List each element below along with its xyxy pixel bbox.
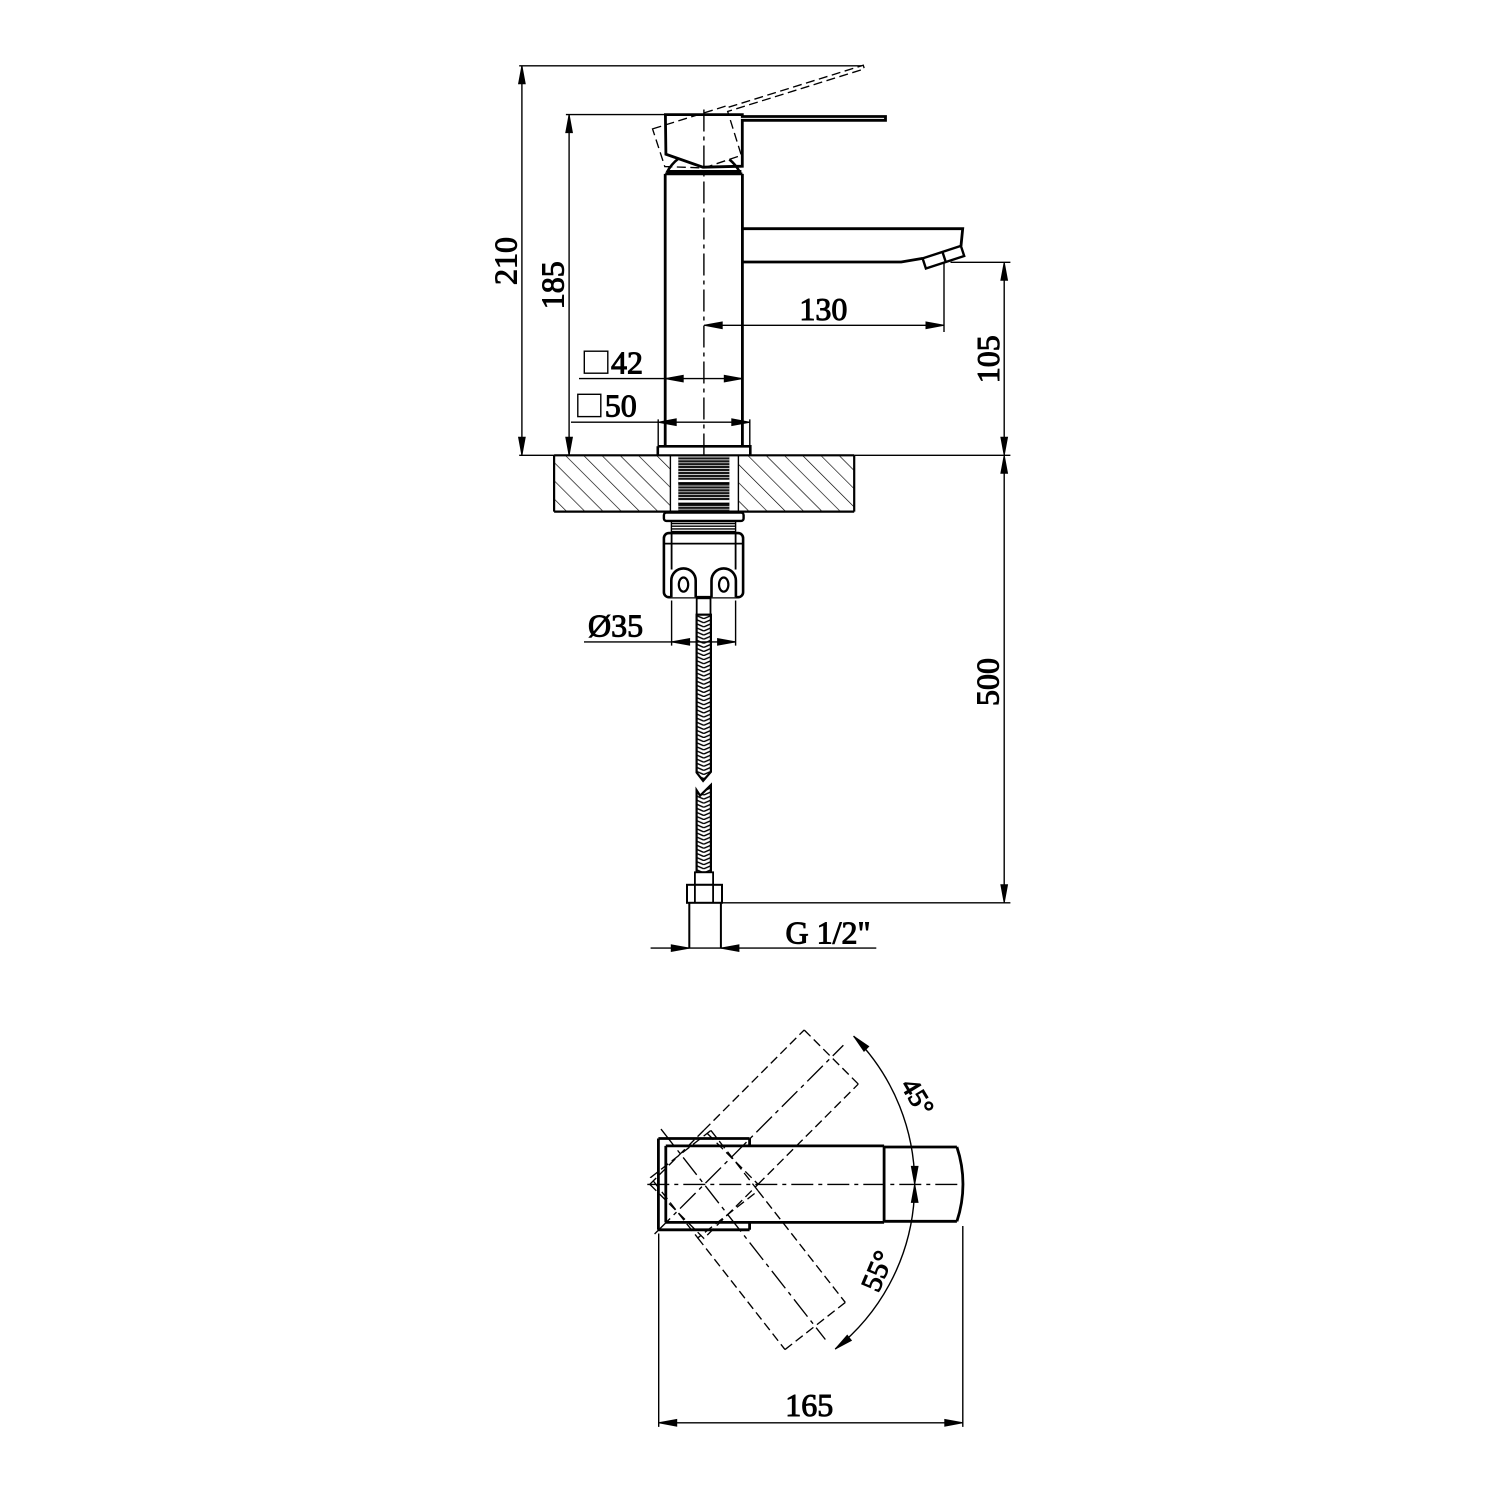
svg-text:210: 210 xyxy=(488,237,524,285)
svg-text:500: 500 xyxy=(970,658,1006,706)
svg-text:165: 165 xyxy=(785,1387,833,1423)
svg-text:Ø35: Ø35 xyxy=(588,608,643,644)
svg-text:42: 42 xyxy=(611,344,643,380)
svg-text:105: 105 xyxy=(970,335,1006,383)
svg-text:G 1/2": G 1/2" xyxy=(786,915,871,951)
svg-text:130: 130 xyxy=(799,291,847,327)
svg-text:185: 185 xyxy=(535,261,571,309)
svg-text:55°: 55° xyxy=(855,1246,900,1296)
svg-text:50: 50 xyxy=(605,388,637,424)
